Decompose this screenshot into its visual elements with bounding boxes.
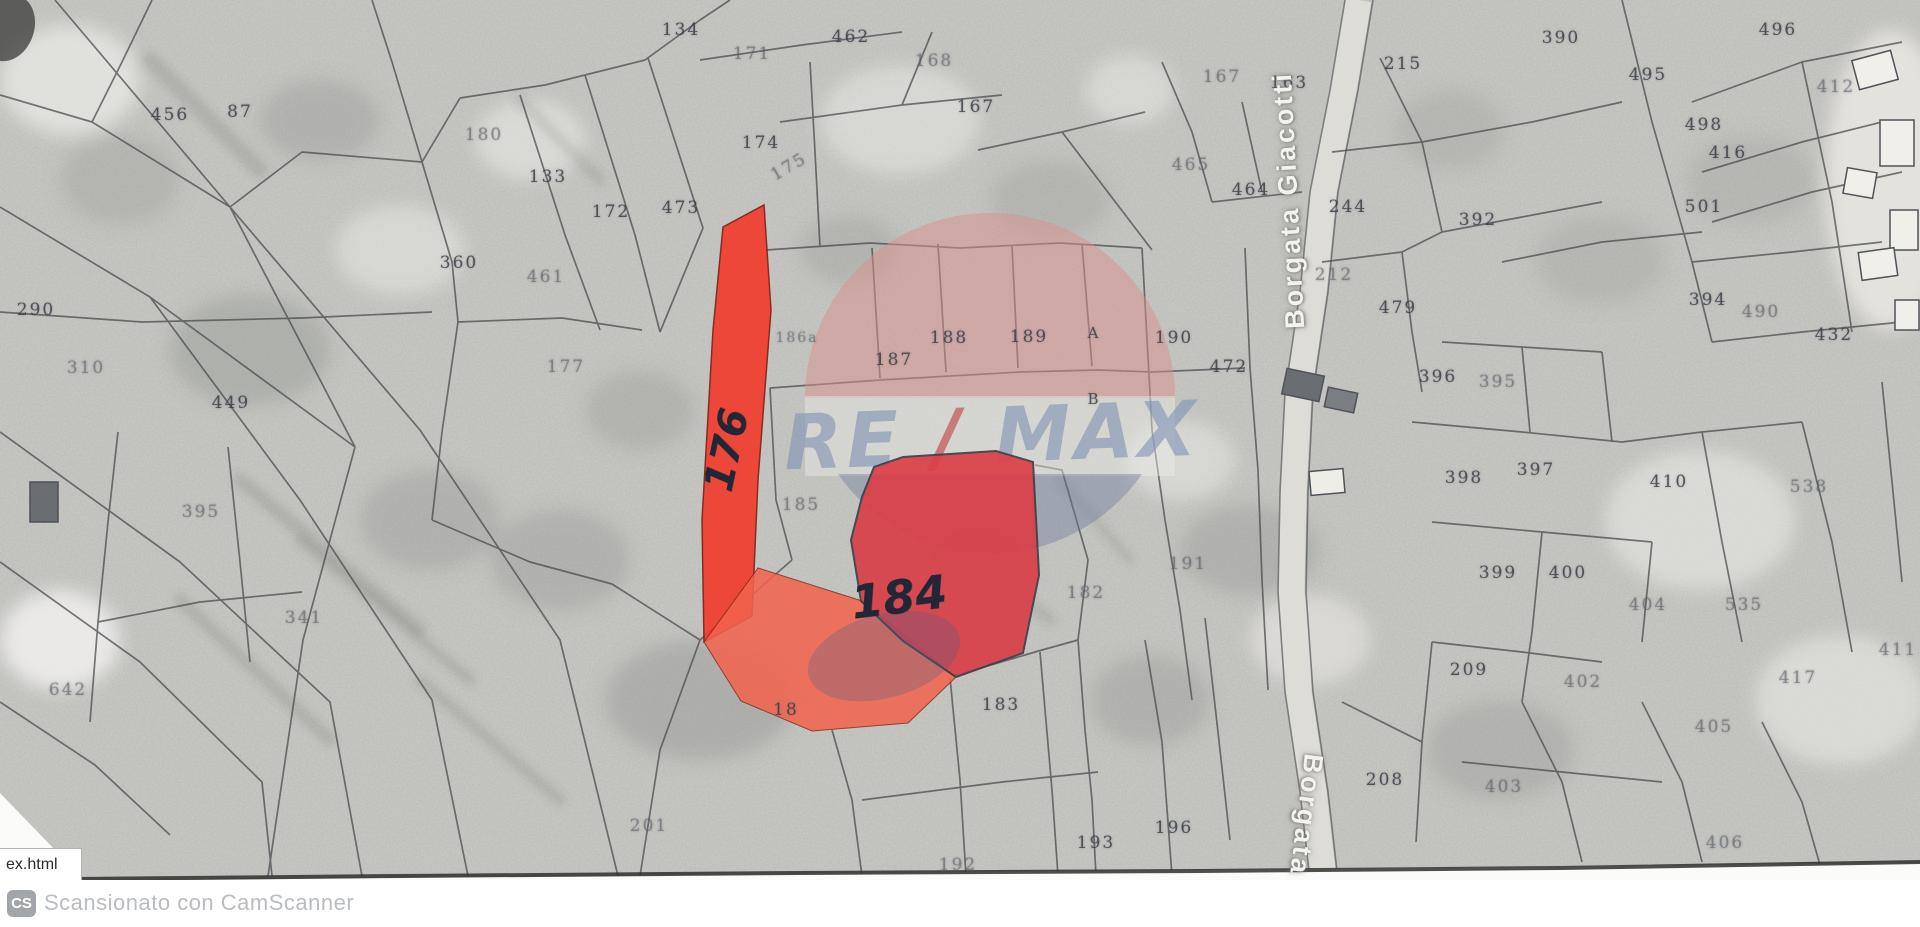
parcel-number-label: 177 xyxy=(547,357,585,377)
camscanner-footer: CS Scansionato con CamScanner xyxy=(0,880,1920,927)
parcel-number-label: 190 xyxy=(1155,328,1193,348)
parcel-number-label: 461 xyxy=(527,267,565,287)
parcel-number-label: 244 xyxy=(1329,197,1367,217)
parcel-number-label: 400 xyxy=(1549,563,1587,583)
parcel-number-label: 465 xyxy=(1172,155,1210,175)
screen: RE / MAX 4568713417146216816716716321539… xyxy=(0,0,1920,927)
parcel-number-label: 495 xyxy=(1629,65,1667,85)
parcel-number-label: 456 xyxy=(151,105,189,125)
parcel-number-label: 464 xyxy=(1232,180,1270,200)
parcel-number-label: 134 xyxy=(662,20,700,40)
parcel-number-label: 201 xyxy=(630,816,668,836)
parcel-number-label: 390 xyxy=(1542,28,1580,48)
parcel-number-label: 395 xyxy=(1479,372,1517,392)
parcel-number-label: A xyxy=(1088,324,1101,342)
parcel-number-label: 167 xyxy=(1203,67,1241,87)
parcel-number-label: 473 xyxy=(662,198,700,218)
parcel-number-label: 399 xyxy=(1479,563,1517,583)
parcel-number-label: 406 xyxy=(1706,833,1744,853)
parcel-number-label: 490 xyxy=(1742,302,1780,322)
parcel-number-label: 168 xyxy=(915,51,953,71)
parcel-number-label: 188 xyxy=(930,328,968,348)
parcel-number-label: 411 xyxy=(1879,640,1917,660)
parcel-number-label: 310 xyxy=(67,358,105,378)
parcel-number-label: 472 xyxy=(1210,357,1248,377)
parcel-number-label: 405 xyxy=(1695,717,1733,737)
camscanner-footer-text: Scansionato con CamScanner xyxy=(44,890,354,916)
cadastral-map: RE / MAX 4568713417146216816716716321539… xyxy=(0,0,1920,880)
parcel-number-label: 360 xyxy=(440,253,478,273)
parcel-number-label: 410 xyxy=(1650,472,1688,492)
parcel-number-label: 535 xyxy=(1725,595,1763,615)
parcel-number-label: 180 xyxy=(465,125,503,145)
parcel-number-label: 174 xyxy=(742,133,780,153)
parcel-number-label: 187 xyxy=(875,350,913,370)
parcel-number-label: 18 xyxy=(773,700,799,720)
parcel-number-label: 642 xyxy=(49,680,87,700)
status-filename-box: ex.html xyxy=(0,848,82,880)
parcel-number-label: 133 xyxy=(529,167,567,187)
parcel-number-label: 290 xyxy=(17,300,55,320)
parcel-number-label: 87 xyxy=(227,102,253,122)
parcel-number-label: 449 xyxy=(212,393,250,413)
camscanner-badge-icon: CS xyxy=(7,890,36,917)
parcel-number-label: 479 xyxy=(1379,298,1417,318)
parcel-number-label: 191 xyxy=(1169,554,1207,574)
parcel-number-label: 403 xyxy=(1485,777,1523,797)
parcel-number-label: 186a xyxy=(775,330,818,346)
parcel-number-label: 412 xyxy=(1817,77,1855,97)
parcel-number-label: 209 xyxy=(1450,660,1488,680)
parcel-number-label: B xyxy=(1087,390,1100,408)
parcel-number-label: 538 xyxy=(1790,477,1828,497)
parcel-number-label: 167 xyxy=(957,97,995,117)
parcel-number-label: 417 xyxy=(1779,668,1817,688)
parcel-number-label: 183 xyxy=(982,695,1020,715)
parcel-number-label: 196 xyxy=(1155,818,1193,838)
parcel-number-label: 496 xyxy=(1759,20,1797,40)
parcel-number-label: 171 xyxy=(733,44,771,64)
parcel-number-label: 394 xyxy=(1689,290,1727,310)
parcel-number-label: 215 xyxy=(1384,54,1422,74)
parcel-number-label: 397 xyxy=(1517,460,1555,480)
parcel-number-label: 402 xyxy=(1564,672,1602,692)
parcel-number-label: 172 xyxy=(592,202,630,222)
parcel-number-label: 396 xyxy=(1419,367,1457,387)
parcel-number-label: 462 xyxy=(832,27,870,47)
parcel-number-label: 395 xyxy=(182,502,220,522)
parcel-number-label: 501 xyxy=(1685,197,1723,217)
parcel-number-label: 212 xyxy=(1315,265,1353,285)
parcel-number-label: 182 xyxy=(1067,583,1105,603)
status-filename: ex.html xyxy=(6,856,58,874)
parcel-number-label: 341 xyxy=(285,608,323,628)
parcel-number-label: 398 xyxy=(1445,468,1483,488)
parcel-number-label: 189 xyxy=(1010,327,1048,347)
parcel-number-label: 193 xyxy=(1077,833,1115,853)
parcel-number-label: 498 xyxy=(1685,115,1723,135)
cadastral-map-svg: RE / MAX xyxy=(0,0,1920,880)
parcel-number-label: 192 xyxy=(939,855,977,875)
parcel-number-label: 208 xyxy=(1366,770,1404,790)
parcel-number-label: 392 xyxy=(1459,210,1497,230)
parcel-number-label: 404 xyxy=(1629,595,1667,615)
parcel-number-label: 185 xyxy=(782,495,820,515)
parcel-number-label: 416 xyxy=(1709,143,1747,163)
parcel-number-label: 432 xyxy=(1815,325,1853,345)
